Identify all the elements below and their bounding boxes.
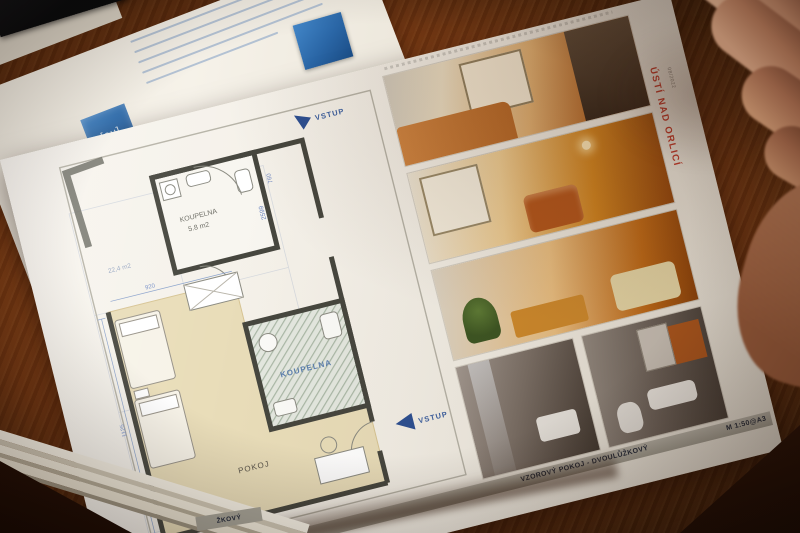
entry-arrow-top [294, 112, 313, 131]
armchair-shape [522, 183, 585, 234]
window-shape [419, 164, 491, 236]
under-caption-text: ŽKOVÝ [216, 514, 242, 525]
entry-label-top: VSTUP [314, 106, 345, 122]
table-shape [509, 294, 589, 339]
faint-area-label: 22,4 m2 [107, 262, 132, 275]
entry-label-side: VSTUP [417, 409, 448, 425]
dim-1125: 1125 [120, 423, 129, 438]
sofa-shape [610, 260, 682, 312]
dim-760: 760 [266, 172, 274, 184]
photo-of-architecture-booklet: [ou] 22,4 m2 POKOJ [0, 0, 800, 533]
footer-scale: M 1:50@A3 [726, 415, 768, 432]
plant-shape [458, 294, 503, 345]
lamp-glow [581, 140, 592, 151]
fixture-shape [535, 409, 581, 443]
toilet-shape [614, 400, 645, 435]
shower-glass [467, 360, 516, 476]
entry-arrow-side [394, 413, 416, 434]
sink-shape [646, 379, 698, 411]
